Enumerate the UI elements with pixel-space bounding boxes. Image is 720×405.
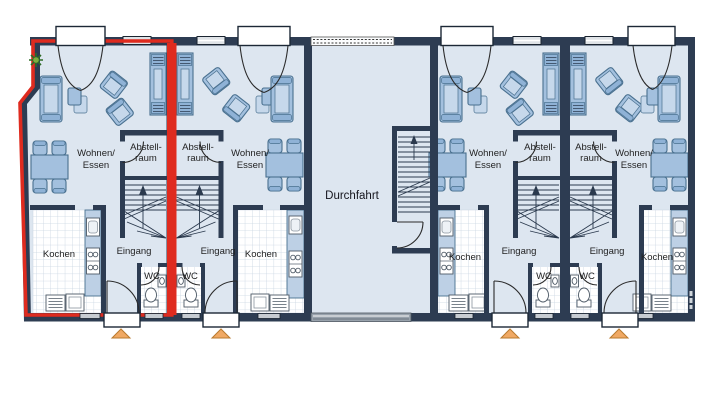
entrance-marker-icon — [212, 329, 230, 338]
kitchen-sink — [87, 218, 100, 236]
watermark — [690, 291, 693, 309]
terrace-recess — [441, 27, 493, 46]
passage-label: Durchfahrt — [325, 190, 379, 202]
sofa — [40, 76, 62, 122]
entrance-marker-icon — [112, 329, 130, 338]
kitchen-sink — [673, 218, 686, 236]
living-label: Wohnen/ — [231, 148, 269, 159]
terrace-recess — [628, 27, 675, 46]
entrance-label: Eingang — [201, 246, 236, 257]
kitchen-sink — [289, 216, 302, 234]
wc-sink-icon — [571, 275, 579, 287]
wall-cabinet — [150, 53, 166, 115]
storage-label: raum — [529, 153, 551, 164]
stove-icon — [289, 251, 302, 277]
party-wall — [560, 45, 570, 314]
living-label: Essen — [475, 160, 501, 171]
toilet-icon — [144, 288, 158, 307]
entrance-label: Eingang — [590, 246, 625, 257]
window — [197, 37, 225, 45]
storage-label: Abstell- — [524, 142, 556, 153]
living-label: Essen — [621, 160, 647, 171]
living-label: Essen — [237, 160, 263, 171]
passage-wall-right — [430, 45, 438, 314]
terrace-recess — [238, 27, 290, 46]
basement-window — [535, 314, 553, 319]
passage-opening-top — [311, 37, 394, 46]
entrance-label: Eingang — [502, 246, 537, 257]
fridge-icon — [270, 295, 289, 311]
appliance-icon — [251, 294, 269, 311]
window — [513, 37, 541, 45]
storage-label: Abstell- — [182, 142, 214, 153]
sofa — [440, 76, 462, 122]
living-label: Wohnen/ — [469, 148, 507, 159]
toilet-icon — [577, 288, 591, 307]
window — [585, 37, 613, 45]
entrance-stoop — [602, 313, 638, 327]
basement-window — [80, 314, 100, 319]
entrance-stoop — [104, 313, 140, 327]
storage-label: raum — [580, 153, 602, 164]
sofa — [271, 76, 293, 122]
fridge-icon — [449, 295, 468, 311]
entrance-marker-icon — [501, 329, 519, 338]
wall-cabinet — [570, 53, 586, 115]
kitchen-label: Kochen — [43, 249, 75, 260]
passage-gate — [311, 313, 411, 322]
kitchen-label: Kochen — [641, 252, 673, 263]
wall-cabinet — [177, 53, 193, 115]
floor-plan-drawing: Wohnen/ Essen Wohnen/ Essen Wohnen/ Esse… — [0, 0, 720, 405]
storage-label: Abstell- — [575, 142, 607, 153]
passage-floor — [311, 45, 431, 314]
basement-window — [182, 314, 200, 319]
living-label: Essen — [83, 160, 109, 171]
living-label: Wohnen/ — [615, 148, 653, 159]
storage-label: Abstell- — [130, 142, 162, 153]
outer-wall-right — [688, 37, 695, 322]
plant-icon — [29, 53, 43, 67]
entrance-marker-icon — [610, 329, 628, 338]
wc-label: WC — [144, 271, 160, 282]
wc-label: WC — [182, 271, 198, 282]
basement-window — [145, 314, 163, 319]
toilet-icon — [536, 288, 550, 307]
basement-window — [258, 314, 280, 319]
basement-window — [571, 314, 589, 319]
appliance-icon — [66, 294, 84, 311]
wc-label: WC — [579, 271, 595, 282]
entrance-label: Eingang — [117, 246, 152, 257]
storage-label: raum — [135, 153, 157, 164]
basement-window — [455, 314, 473, 319]
kitchen-label: Kochen — [245, 249, 277, 260]
stove-icon — [673, 248, 686, 274]
fridge-icon — [652, 295, 671, 311]
kitchen-sink — [440, 218, 453, 236]
storage-label: raum — [187, 153, 209, 164]
terrace-recess — [56, 27, 105, 46]
passage-wall-left — [304, 45, 312, 314]
wc-sink-icon — [551, 275, 559, 287]
living-label: Wohnen/ — [77, 148, 115, 159]
entrance-stoop — [203, 313, 239, 327]
floor-plan-page: Wohnen/ Essen Wohnen/ Essen Wohnen/ Esse… — [0, 0, 720, 405]
stove-icon — [87, 248, 100, 274]
fridge-icon — [46, 295, 65, 311]
wall-cabinet — [543, 53, 559, 115]
entrance-stoop — [492, 313, 528, 327]
toilet-icon — [184, 288, 198, 307]
wc-label: WC — [536, 271, 552, 282]
sofa — [658, 76, 680, 122]
kitchen-label: Kochen — [449, 252, 481, 263]
